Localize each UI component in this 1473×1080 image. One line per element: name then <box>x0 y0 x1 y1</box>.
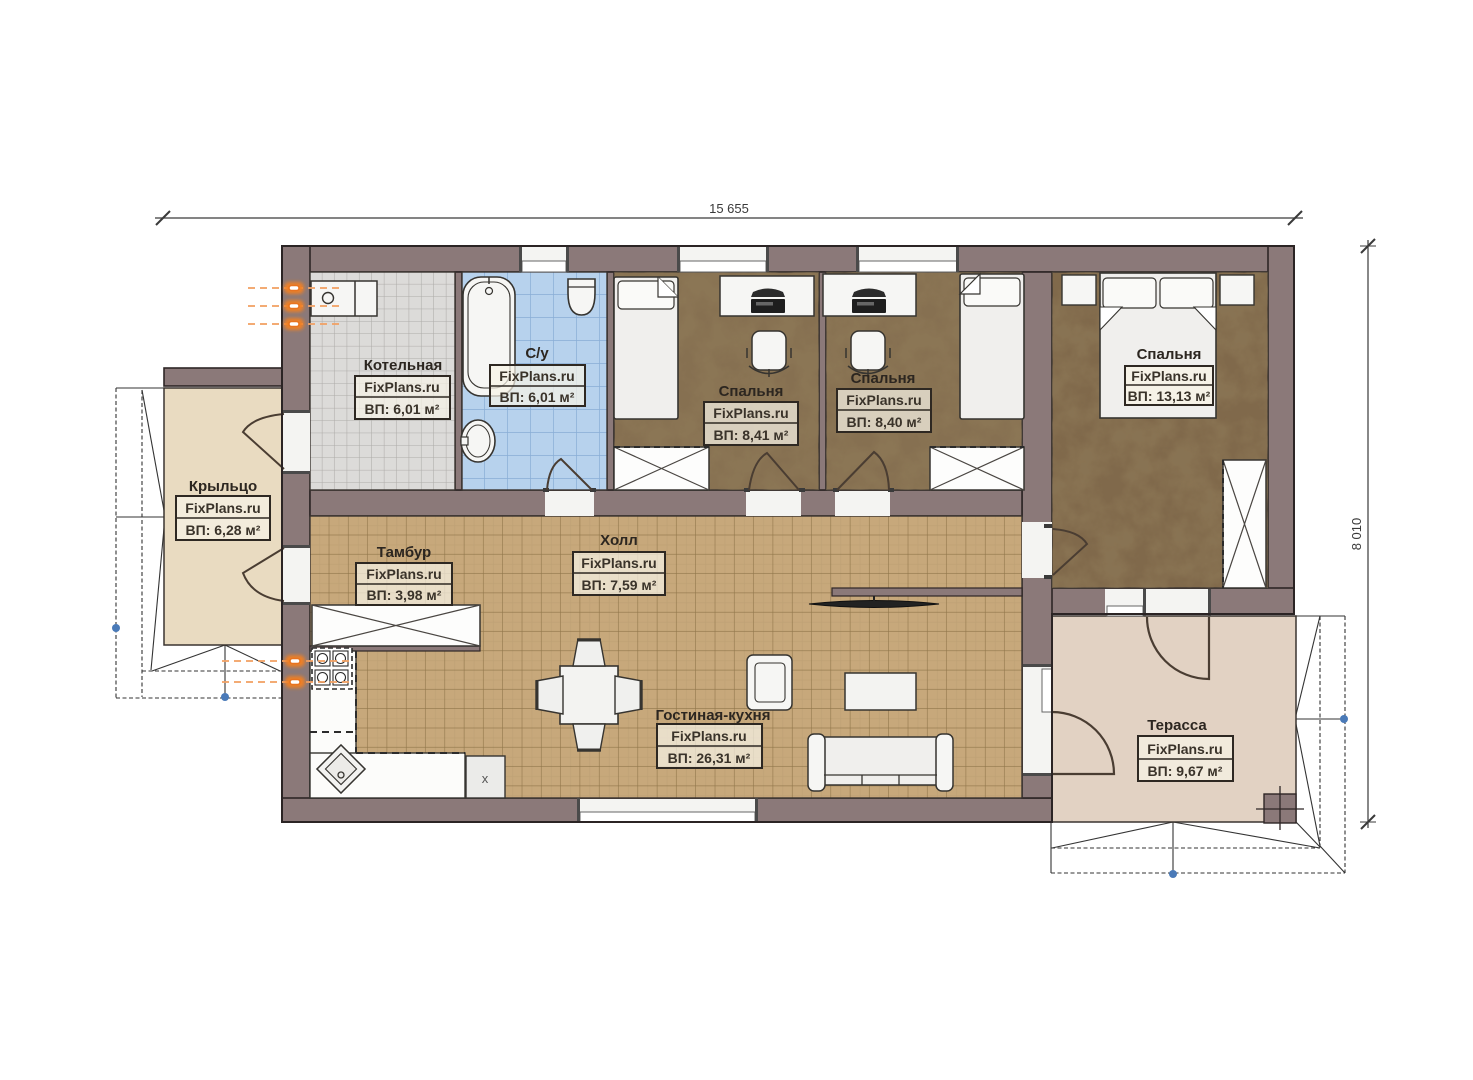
svg-text:FixPlans.ru: FixPlans.ru <box>846 392 921 408</box>
svg-text:FixPlans.ru: FixPlans.ru <box>1131 368 1206 384</box>
svg-text:ВП: 6,01 м²: ВП: 6,01 м² <box>365 401 440 417</box>
svg-text:Крыльцо: Крыльцо <box>189 478 257 495</box>
svg-text:FixPlans.ru: FixPlans.ru <box>1147 741 1222 757</box>
svg-text:Спальня: Спальня <box>1137 346 1202 363</box>
svg-text:FixPlans.ru: FixPlans.ru <box>671 728 746 744</box>
svg-text:Терасса: Терасса <box>1147 717 1207 734</box>
svg-text:15 655: 15 655 <box>709 201 749 216</box>
svg-text:FixPlans.ru: FixPlans.ru <box>366 566 441 582</box>
svg-text:ВП: 9,67 м²: ВП: 9,67 м² <box>1148 763 1223 779</box>
svg-text:Котельная: Котельная <box>364 357 443 374</box>
svg-text:ВП: 6,01 м²: ВП: 6,01 м² <box>500 389 575 405</box>
svg-text:ВП: 13,13 м²: ВП: 13,13 м² <box>1128 388 1211 404</box>
svg-text:С/у: С/у <box>525 345 549 362</box>
svg-text:FixPlans.ru: FixPlans.ru <box>499 368 574 384</box>
svg-text:Спальня: Спальня <box>851 370 916 387</box>
svg-text:FixPlans.ru: FixPlans.ru <box>581 555 656 571</box>
svg-text:FixPlans.ru: FixPlans.ru <box>713 405 788 421</box>
svg-text:Гостиная-кухня: Гостиная-кухня <box>656 707 771 724</box>
svg-text:Спальня: Спальня <box>719 383 784 400</box>
svg-text:ВП: 3,98 м²: ВП: 3,98 м² <box>367 587 442 603</box>
svg-text:8 010: 8 010 <box>1349 518 1364 551</box>
svg-text:ВП: 6,28 м²: ВП: 6,28 м² <box>186 522 261 538</box>
svg-text:х: х <box>482 771 489 786</box>
svg-text:ВП: 26,31 м²: ВП: 26,31 м² <box>668 750 751 766</box>
svg-text:FixPlans.ru: FixPlans.ru <box>185 500 260 516</box>
svg-text:ВП: 8,41 м²: ВП: 8,41 м² <box>714 427 789 443</box>
svg-text:ВП: 7,59 м²: ВП: 7,59 м² <box>582 577 657 593</box>
svg-text:Тамбур: Тамбур <box>377 544 431 561</box>
svg-text:FixPlans.ru: FixPlans.ru <box>364 379 439 395</box>
svg-text:ВП: 8,40 м²: ВП: 8,40 м² <box>847 414 922 430</box>
svg-text:Холл: Холл <box>600 532 638 549</box>
